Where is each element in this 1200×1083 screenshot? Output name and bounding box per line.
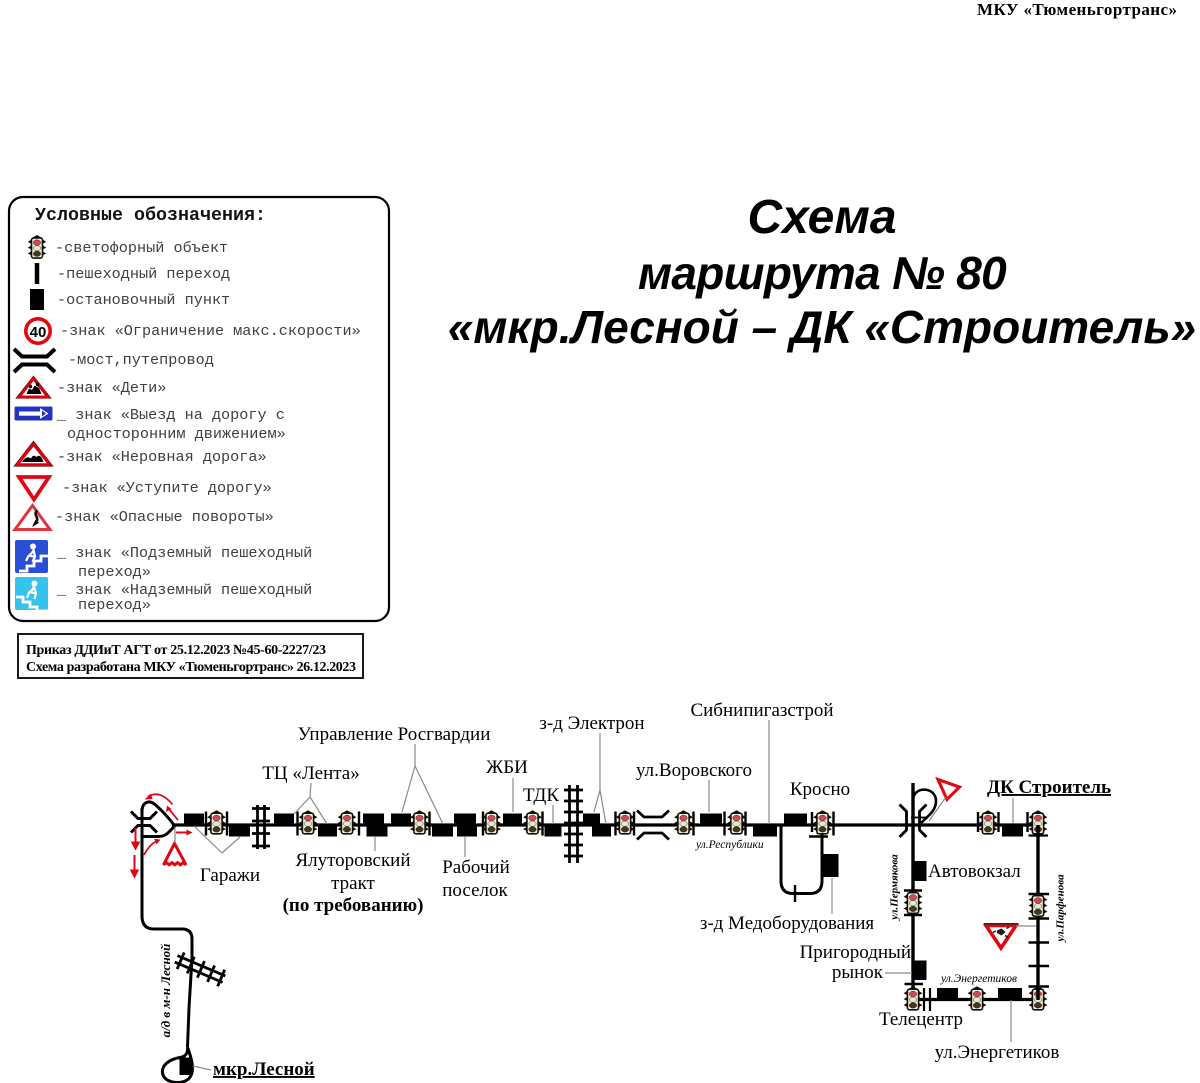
svg-text:ул.Парфенова: ул.Парфенова xyxy=(1055,874,1067,944)
svg-text:(по требованию): (по требованию) xyxy=(283,895,424,916)
svg-text:односторонним движением»: односторонним движением» xyxy=(67,425,286,443)
svg-text:з-д Электрон: з-д Электрон xyxy=(539,713,644,734)
svg-text:рынок: рынок xyxy=(832,962,884,983)
svg-text:з-д Медоборудования: з-д Медоборудования xyxy=(700,913,875,934)
svg-text:Автовокзал: Автовокзал xyxy=(928,861,1021,882)
svg-text:Телецентр: Телецентр xyxy=(879,1009,963,1030)
svg-text:ТЦ «Лента»: ТЦ «Лента» xyxy=(262,763,359,784)
svg-text:МКУ «Тюменьгортранс»: МКУ «Тюменьгортранс» xyxy=(977,0,1177,19)
svg-text:-знак «Уступите дорогу»: -знак «Уступите дорогу» xyxy=(62,479,272,497)
svg-text:-знак «Опасные повороты»: -знак «Опасные повороты» xyxy=(55,508,274,526)
svg-text:Ялуторовский: Ялуторовский xyxy=(295,850,410,871)
svg-text:Схема: Схема xyxy=(747,191,896,244)
svg-text:переход»: переход» xyxy=(78,596,151,614)
svg-text:Рабочий: Рабочий xyxy=(442,857,510,878)
svg-text:поселок: поселок xyxy=(442,880,508,901)
svg-text:ул.Энергетиков: ул.Энергетиков xyxy=(940,973,1017,985)
svg-text:тракт: тракт xyxy=(331,873,375,894)
svg-text:Сибнипигазстрой: Сибнипигазстрой xyxy=(690,700,833,721)
svg-text:-светофорный объект: -светофорный объект xyxy=(55,239,228,257)
svg-text:_ знак «Выезд на дорогу с: _ знак «Выезд на дорогу с xyxy=(56,406,285,424)
svg-text:мкр.Лесной: мкр.Лесной xyxy=(213,1059,315,1080)
svg-text:маршрута № 80: маршрута № 80 xyxy=(638,247,1007,299)
svg-text:Приказ ДДИиТ АГТ от 25.12.2023: Приказ ДДИиТ АГТ от 25.12.2023 №45-60-22… xyxy=(26,643,326,658)
svg-text:-знак «Неровная дорога»: -знак «Неровная дорога» xyxy=(57,448,267,466)
svg-text:ул.Республики: ул.Республики xyxy=(695,839,764,851)
svg-text:-знак «Дети»: -знак «Дети» xyxy=(57,379,166,397)
svg-text:ул.Энергетиков: ул.Энергетиков xyxy=(935,1042,1060,1063)
svg-text:переход»: переход» xyxy=(78,563,151,581)
svg-text:ТДК: ТДК xyxy=(523,785,559,806)
svg-text:Условные обозначения:: Условные обозначения: xyxy=(35,205,266,226)
svg-text:Схема разработана МКУ «Тюменьг: Схема разработана МКУ «Тюменьгортранс» 2… xyxy=(26,660,356,675)
svg-text:-остановочный пункт: -остановочный пункт xyxy=(57,291,230,309)
svg-text:_ знак «Подземный пешеходный: _ знак «Подземный пешеходный xyxy=(56,544,312,562)
svg-text:Пригородный: Пригородный xyxy=(800,942,911,963)
svg-text:«мкр.Лесной – ДК «Строитель»: «мкр.Лесной – ДК «Строитель» xyxy=(448,301,1197,353)
svg-text:-мост,путепровод: -мост,путепровод xyxy=(68,351,214,369)
svg-text:ДК Строитель: ДК Строитель xyxy=(987,777,1111,798)
svg-text:ул.Пермякова: ул.Пермякова xyxy=(889,854,901,922)
svg-text:Гаражи: Гаражи xyxy=(200,865,260,886)
svg-text:-пешеходный переход: -пешеходный переход xyxy=(57,265,230,283)
svg-text:Управление Росгвардии: Управление Росгвардии xyxy=(298,724,491,745)
svg-text:ул.Воровского: ул.Воровского xyxy=(636,760,752,781)
svg-text:-знак «Ограничение макс.скорос: -знак «Ограничение макс.скорости» xyxy=(60,322,361,340)
svg-text:Кросно: Кросно xyxy=(790,779,850,800)
svg-text:40: 40 xyxy=(30,324,47,341)
svg-text:а/д в м-н Лесной: а/д в м-н Лесной xyxy=(158,944,173,1038)
svg-text:ЖБИ: ЖБИ xyxy=(486,757,528,778)
